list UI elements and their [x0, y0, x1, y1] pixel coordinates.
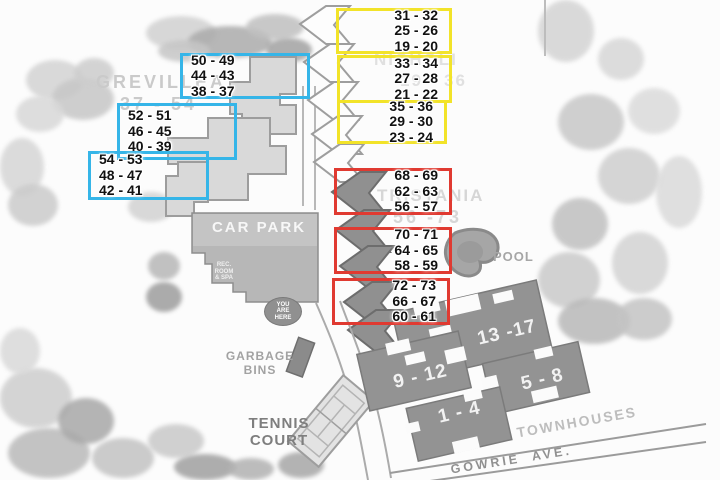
garbage-bins-label: GARBAGE BINS [222, 349, 298, 377]
unit-range: 44 - 43 [191, 68, 307, 84]
unit-box-red-3: 72 - 73 66 - 67 60 - 61 [332, 278, 450, 325]
unit-box-red-1: 68 - 69 62 - 63 56 - 57 [334, 168, 452, 215]
unit-box-cyan-3: 54 - 53 48 - 47 42 - 41 [88, 151, 209, 200]
unit-range: 62 - 63 [337, 184, 438, 200]
unit-box-red-2: 70 - 71 64 - 65 58 - 59 [334, 227, 452, 274]
unit-range: 70 - 71 [337, 227, 438, 243]
unit-range: 25 - 26 [339, 23, 438, 39]
unit-box-yellow-2: 33 - 34 27 - 28 21 - 22 [337, 55, 452, 103]
unit-range: 68 - 69 [337, 168, 438, 184]
unit-range: 50 - 49 [191, 53, 307, 69]
unit-range: 46 - 45 [128, 124, 234, 140]
unit-range: 33 - 34 [340, 56, 438, 72]
unit-range: 29 - 30 [340, 114, 433, 130]
unit-range: 38 - 37 [191, 84, 307, 100]
pool-label: POOL [493, 249, 534, 264]
rec-room-spa-label: REC. ROOM & SPA [206, 262, 242, 282]
unit-range: 64 - 65 [337, 243, 438, 259]
pool-shape [445, 229, 498, 276]
unit-range: 52 - 51 [128, 108, 234, 124]
resort-site-map: GREVILLEA 37 - 54 NICHOLI 19 - 36 TRISTA… [0, 0, 720, 480]
unit-range: 60 - 61 [335, 309, 436, 325]
unit-range: 31 - 32 [339, 8, 438, 24]
unit-range: 23 - 24 [340, 130, 433, 146]
unit-range: 54 - 53 [99, 152, 206, 168]
unit-range: 56 - 57 [337, 199, 438, 215]
you-are-here-marker: YOU ARE HERE [264, 297, 302, 326]
unit-range: 72 - 73 [335, 278, 436, 294]
unit-range: 58 - 59 [337, 258, 438, 274]
unit-range: 27 - 28 [340, 71, 438, 87]
unit-box-yellow-1: 31 - 32 25 - 26 19 - 20 [336, 8, 452, 54]
unit-box-yellow-3: 35 - 36 29 - 30 23 - 24 [337, 100, 447, 144]
car-park-label: CAR PARK [200, 219, 318, 236]
unit-range: 66 - 67 [335, 294, 436, 310]
tennis-court-label: TENNIS COURT [236, 415, 322, 449]
unit-range: 35 - 36 [340, 99, 433, 115]
unit-box-cyan-1: 50 - 49 44 - 43 38 - 37 [180, 53, 310, 99]
unit-range: 42 - 41 [99, 183, 206, 199]
unit-range: 19 - 20 [339, 39, 438, 55]
unit-range: 48 - 47 [99, 168, 206, 184]
